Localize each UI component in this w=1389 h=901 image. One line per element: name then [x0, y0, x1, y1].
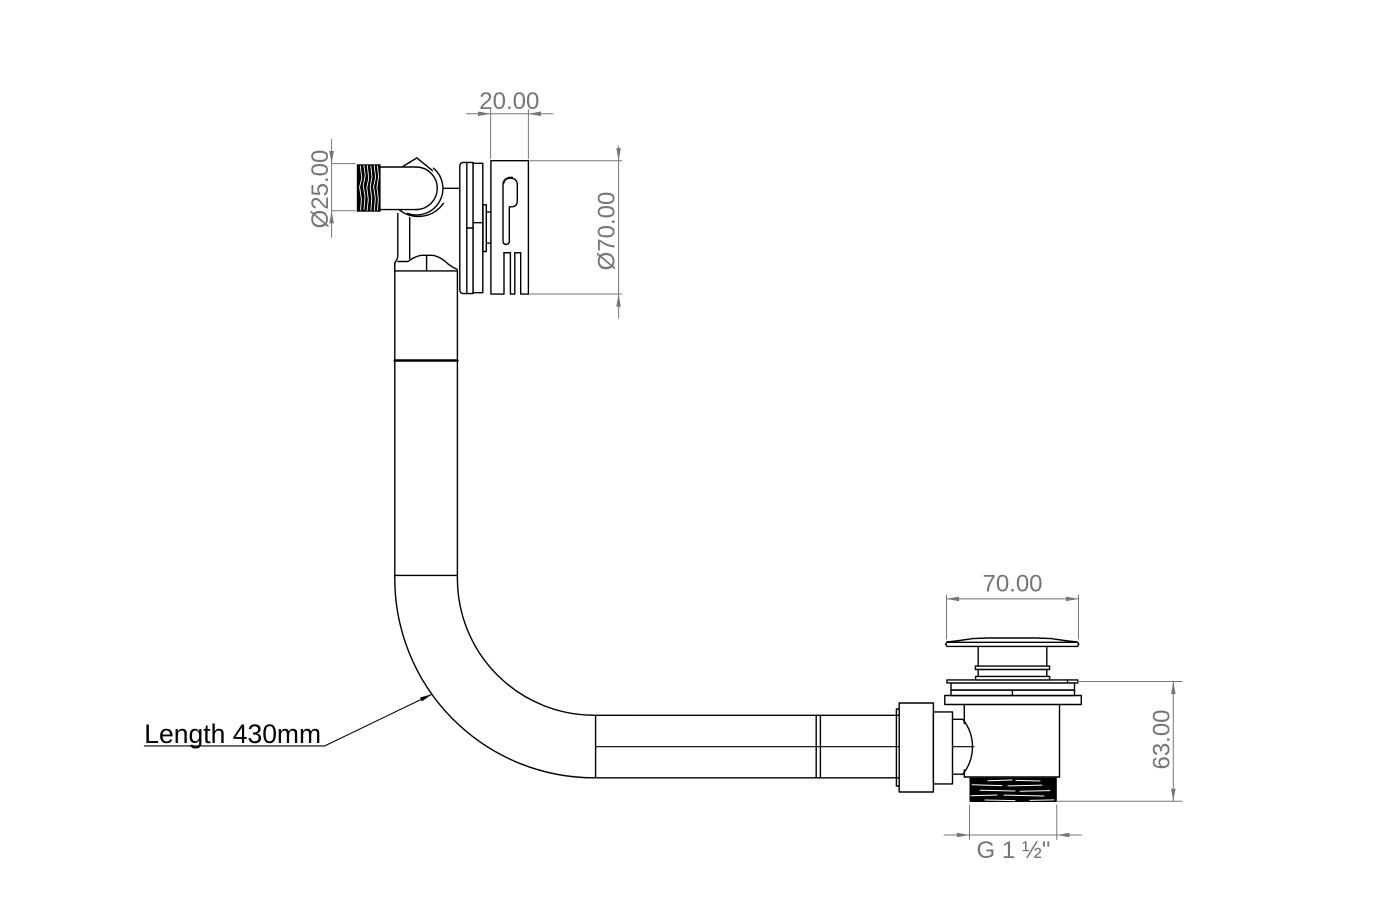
svg-text:Ø70.00: Ø70.00	[594, 192, 621, 271]
svg-text:70.00: 70.00	[982, 571, 1042, 598]
svg-text:20.00: 20.00	[479, 88, 539, 115]
svg-text:G 1 ½": G 1 ½"	[977, 837, 1051, 864]
svg-text:63.00: 63.00	[1149, 709, 1176, 769]
svg-text:Length 430mm: Length 430mm	[144, 719, 321, 749]
svg-text:Ø25.00: Ø25.00	[307, 150, 334, 229]
